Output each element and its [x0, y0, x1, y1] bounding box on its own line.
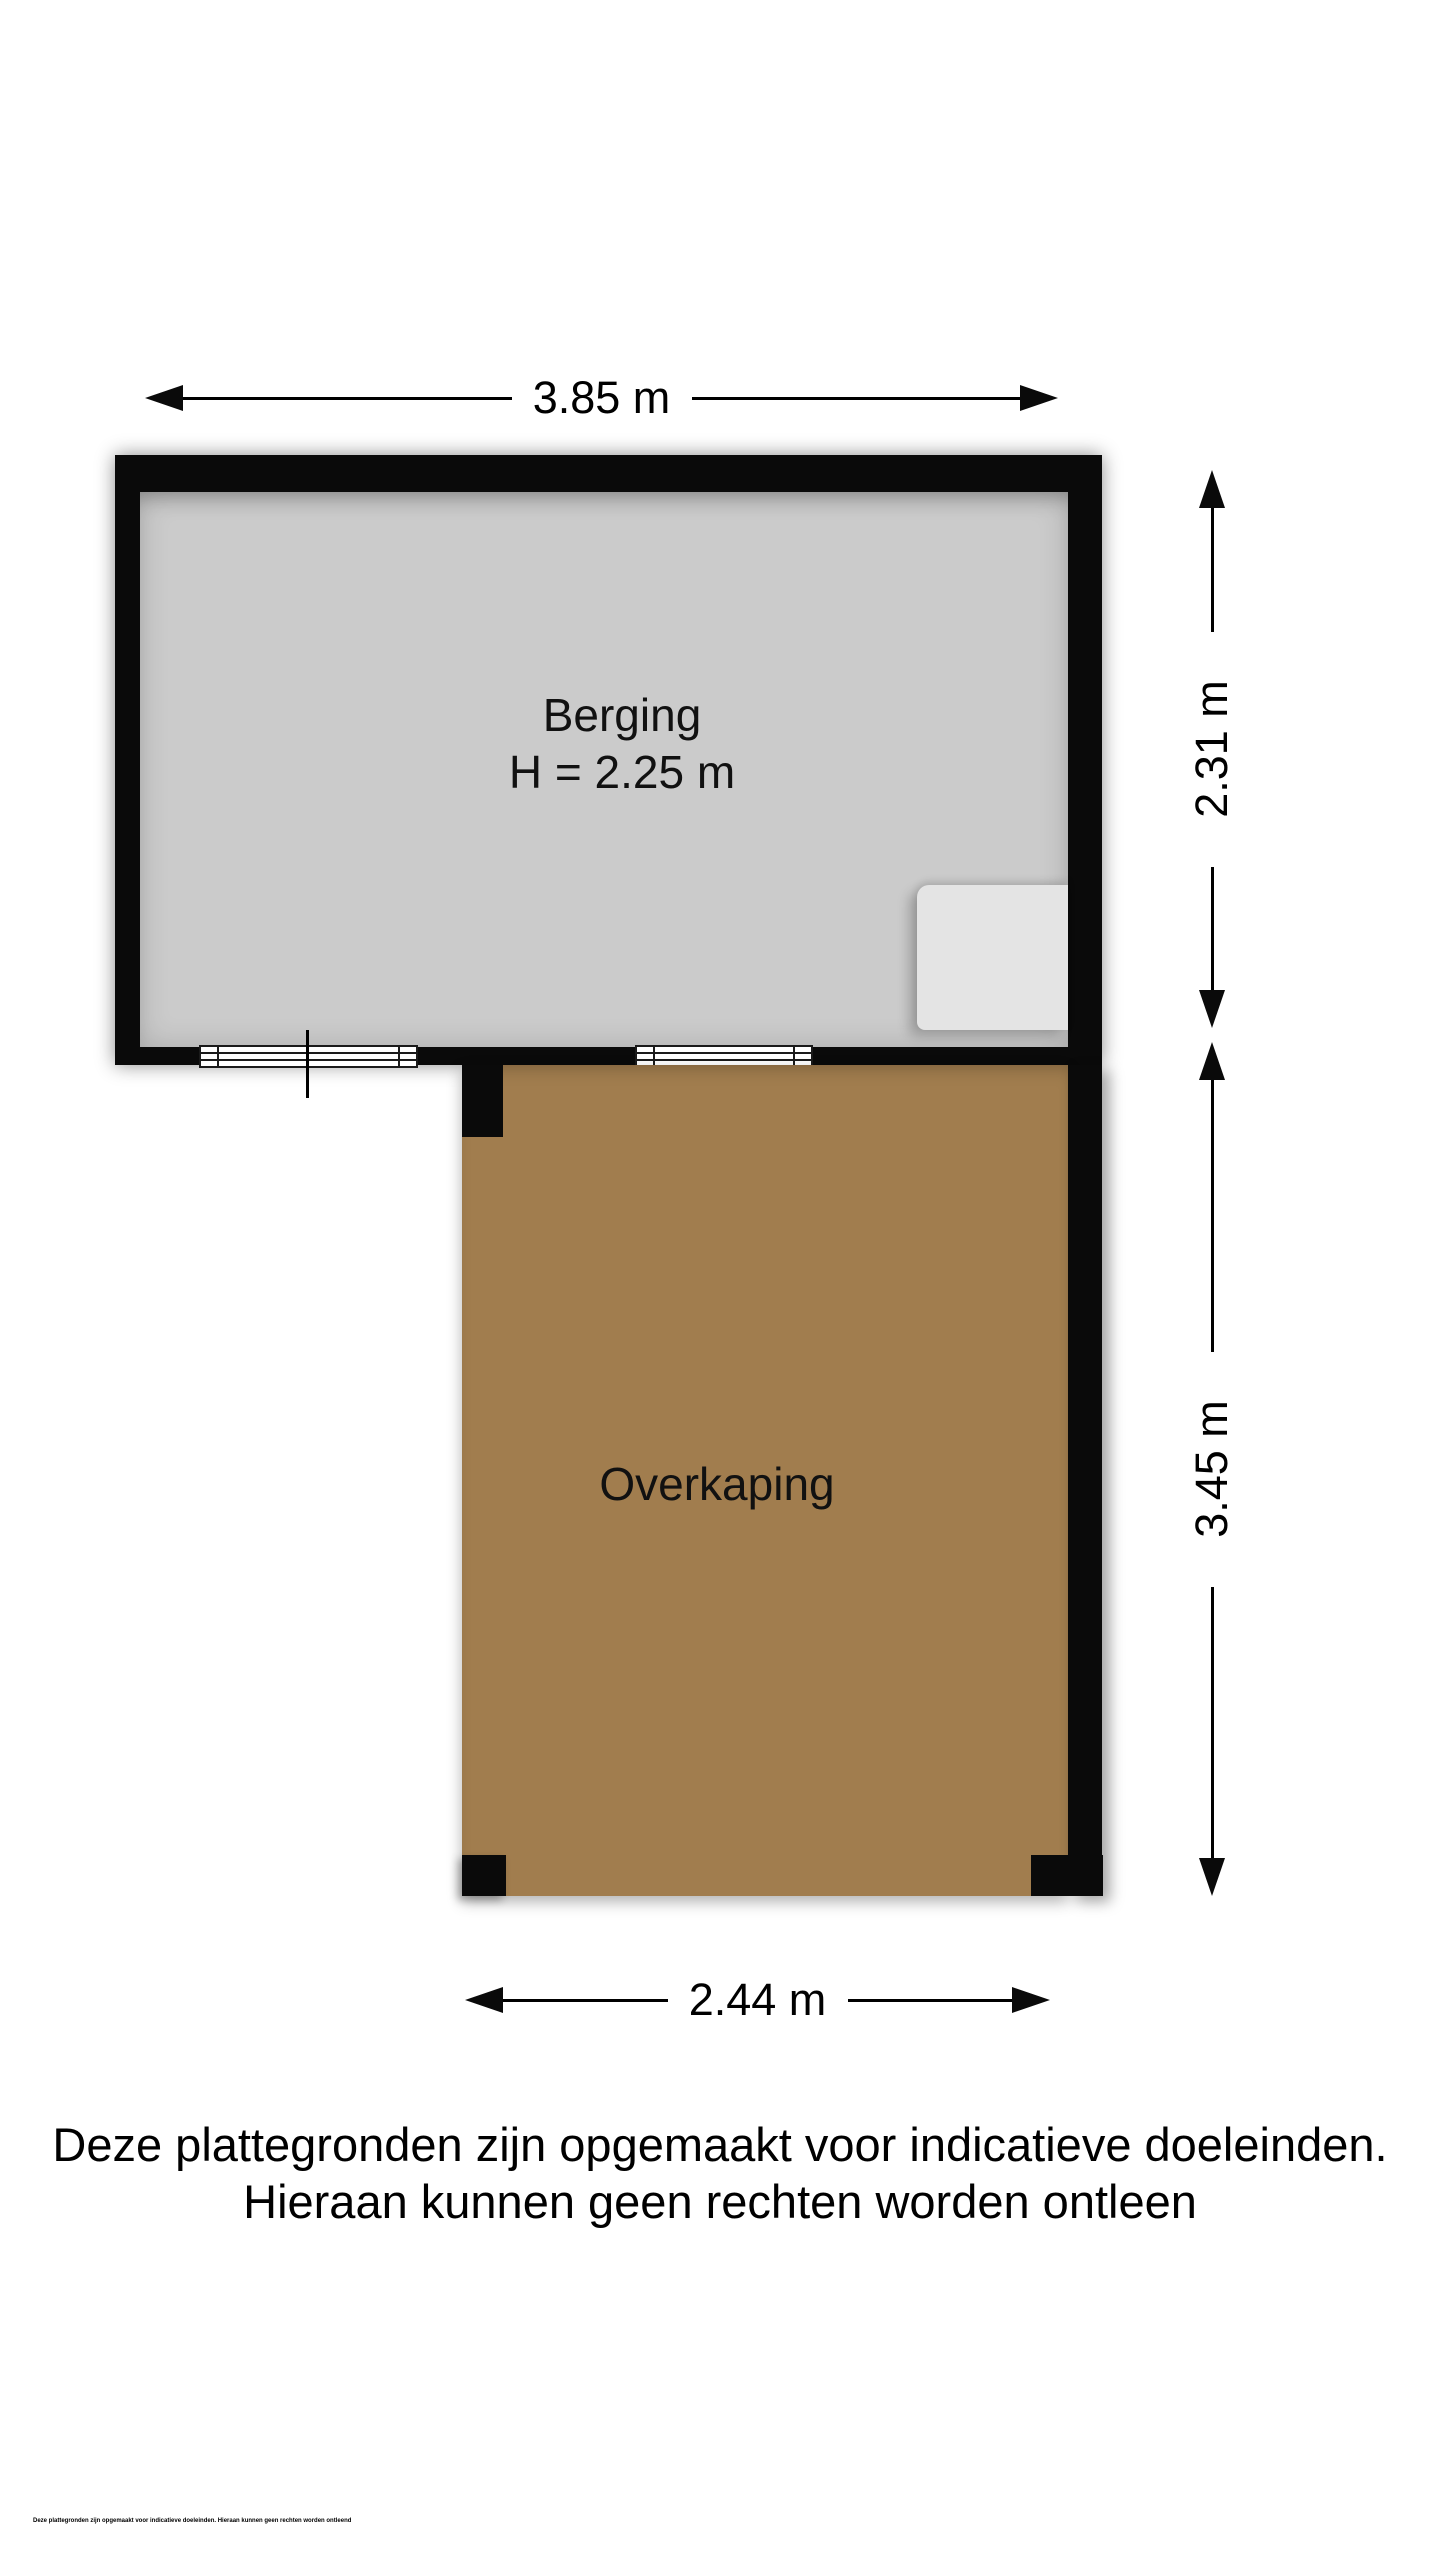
- dimension-line: [1211, 1587, 1214, 1859]
- arrow-down-icon: [1199, 1858, 1225, 1896]
- room-name: Berging: [372, 687, 872, 744]
- berging-closet: [917, 885, 1068, 1030]
- dimension-line: [183, 397, 512, 400]
- overkaping-room-label: Overkaping: [467, 1456, 967, 1513]
- arrow-left-icon: [145, 385, 183, 411]
- arrow-right-icon: [1012, 1987, 1050, 2013]
- arrow-up-icon: [1199, 470, 1225, 508]
- dimension-line: [692, 397, 1021, 400]
- dimension-label: 2.44 m: [668, 1974, 848, 2026]
- disclaimer-text: Deze plattegronden zijn opgemaakt voor i…: [0, 2116, 1440, 2230]
- room-height-label: H = 2.25 m: [372, 744, 872, 801]
- floorplan-page: 3.85 m Berging H = 2.25 m Overkaping 2.3…: [0, 0, 1440, 2560]
- overkaping-post-bottom-right: [1031, 1855, 1103, 1896]
- dimension-label: 2.31 m: [1186, 680, 1238, 818]
- dimension-label: 3.85 m: [512, 372, 692, 424]
- room-name: Overkaping: [467, 1456, 967, 1513]
- dimension-top-width: 3.85 m: [145, 375, 1058, 421]
- arrow-right-icon: [1020, 385, 1058, 411]
- arrow-left-icon: [465, 1987, 503, 2013]
- overkaping-post-bottom-left: [462, 1855, 506, 1896]
- dimension-label: 3.45 m: [1186, 1400, 1238, 1538]
- dimension-line: [1211, 508, 1214, 632]
- overkaping-right-wall: [1068, 1065, 1102, 1896]
- dimension-line: [1211, 1080, 1214, 1352]
- disclaimer-line-2: Hieraan kunnen geen rechten worden ontle…: [0, 2173, 1440, 2230]
- dimension-line: [503, 1999, 668, 2002]
- dimension-overkaping-depth: 3.45 m: [1189, 1042, 1235, 1896]
- arrow-up-icon: [1199, 1042, 1225, 1080]
- dimension-berging-depth: 2.31 m: [1189, 470, 1235, 1028]
- dimension-line: [848, 1999, 1013, 2002]
- dimension-overkaping-width: 2.44 m: [465, 1977, 1050, 2023]
- disclaimer-line-1: Deze plattegronden zijn opgemaakt voor i…: [0, 2116, 1440, 2173]
- overkaping-post-top-left: [462, 1065, 503, 1137]
- arrow-down-icon: [1199, 990, 1225, 1028]
- dimension-line: [1211, 867, 1214, 991]
- berging-room-label: Berging H = 2.25 m: [372, 687, 872, 801]
- door-marker: [306, 1030, 309, 1098]
- fine-print-text: Deze plattegronden zijn opgemaakt voor i…: [33, 2518, 351, 2524]
